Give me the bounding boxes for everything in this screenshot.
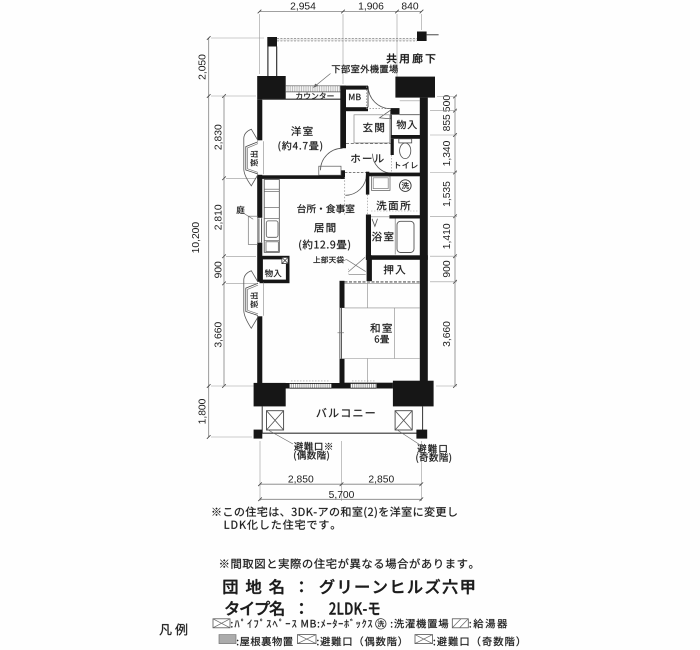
svg-text:5,700: 5,700 bbox=[329, 490, 355, 501]
svg-text:3,660: 3,660 bbox=[442, 321, 453, 347]
svg-text:1,410: 1,410 bbox=[442, 223, 453, 249]
svg-text:900: 900 bbox=[442, 260, 453, 277]
svg-text:2,850: 2,850 bbox=[288, 474, 314, 485]
svg-text:900: 900 bbox=[213, 261, 224, 278]
svg-text:2,830: 2,830 bbox=[213, 124, 224, 150]
svg-text:2,810: 2,810 bbox=[213, 204, 224, 230]
svg-text:855: 855 bbox=[442, 114, 453, 131]
svg-text:2,850: 2,850 bbox=[368, 474, 394, 485]
svg-text:2,050: 2,050 bbox=[198, 54, 209, 80]
svg-text:2,954: 2,954 bbox=[290, 1, 316, 12]
svg-text:1,906: 1,906 bbox=[358, 1, 384, 12]
svg-text:3,660: 3,660 bbox=[213, 322, 224, 348]
svg-text:840: 840 bbox=[401, 1, 418, 12]
svg-text:500: 500 bbox=[442, 95, 453, 112]
svg-text:1,800: 1,800 bbox=[198, 398, 209, 424]
svg-text:1,535: 1,535 bbox=[442, 181, 453, 207]
svg-text:10,200: 10,200 bbox=[191, 222, 202, 254]
svg-text:1,340: 1,340 bbox=[442, 140, 453, 166]
